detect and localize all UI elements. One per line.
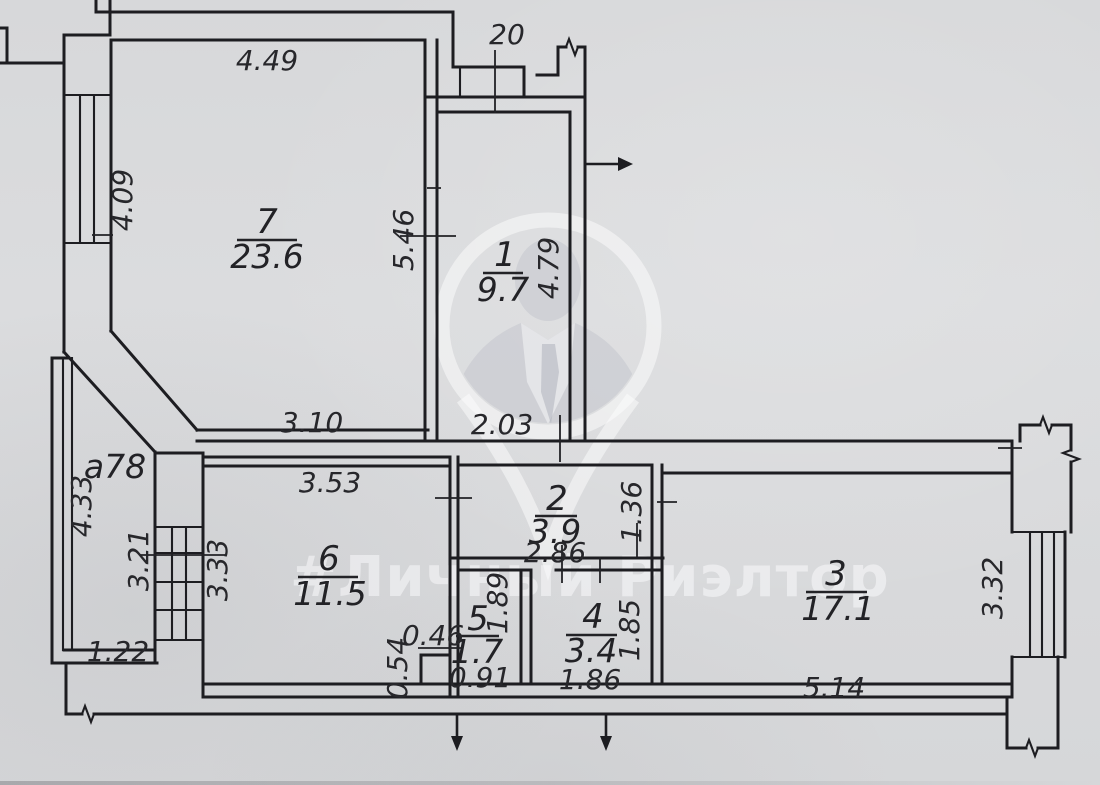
dim-5-right: 1.89 xyxy=(481,572,514,634)
down-arrow-right xyxy=(600,714,612,751)
dim-5-bottom: 0.91 xyxy=(449,661,511,694)
floor-plan-svg: #Личный Риэлтор xyxy=(0,0,1100,785)
photo-bottom-edge xyxy=(0,781,1100,785)
room-1-area: 9.7 xyxy=(477,270,529,309)
down-arrow-left xyxy=(451,714,463,751)
room-7-area: 23.6 xyxy=(230,237,303,276)
dim-4-right: 1.85 xyxy=(613,599,646,661)
dim-7-left: 4.09 xyxy=(106,169,139,231)
dim-1-bottom: 2.03 xyxy=(471,408,533,441)
dim-loggia-bottom: 1.22 xyxy=(87,635,149,668)
room-6-number: 6 xyxy=(318,539,340,579)
room-7-number: 7 xyxy=(256,202,278,242)
floor-plan-photo: #Личный Риэлтор xyxy=(0,0,1100,785)
dim-7-right: 5.46 xyxy=(387,209,420,271)
balcony-20-label: 20 xyxy=(489,18,525,51)
dim-3-bottom: 5.14 xyxy=(803,671,865,704)
dim-2-right: 1.36 xyxy=(615,481,648,543)
entry-arrow xyxy=(585,157,633,171)
dim-1-right: 4.79 xyxy=(532,237,565,299)
dim-loggia-left: 4.33 xyxy=(65,475,98,537)
dim-5-step-height: 0.54 xyxy=(381,637,414,699)
room-3-area: 17.1 xyxy=(801,589,874,628)
dim-7-top: 4.49 xyxy=(236,44,298,77)
dim-7-bottom: 3.10 xyxy=(281,406,343,439)
room-1-number: 1 xyxy=(494,235,516,275)
dim-4-bottom: 1.86 xyxy=(559,663,621,696)
room-3-number: 3 xyxy=(825,554,847,594)
dim-6-left: 3.33 xyxy=(201,539,234,601)
dim-2-bottom: 2.86 xyxy=(524,536,586,569)
dim-6-top: 3.53 xyxy=(299,466,361,499)
dim-loggia-window: 3.21 xyxy=(122,529,155,591)
room-6-area: 11.5 xyxy=(293,574,366,613)
dim-3-right: 3.32 xyxy=(976,557,1009,619)
